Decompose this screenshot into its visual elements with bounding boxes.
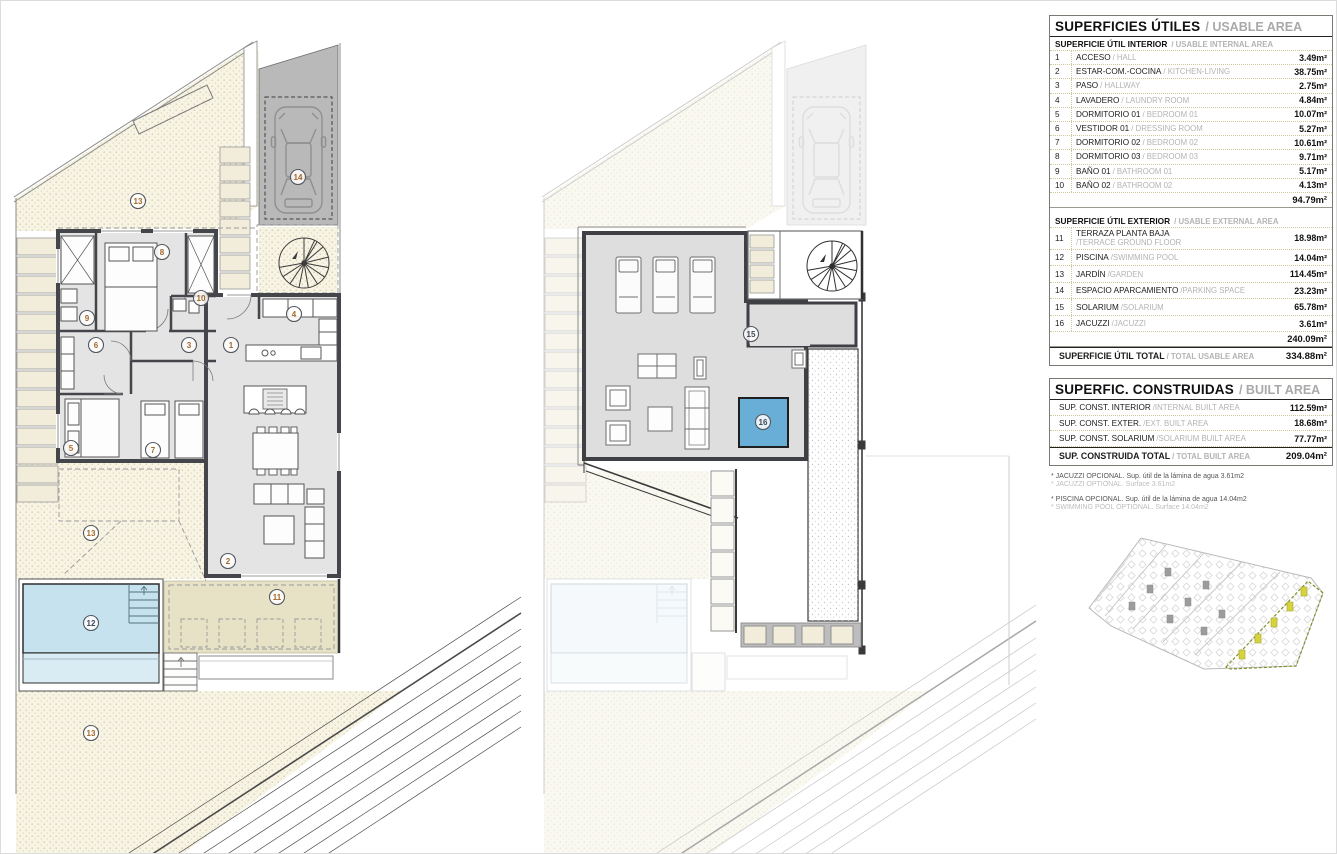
table-row: 9BAÑO 01/ BATHROOM 015.17m² xyxy=(1050,165,1332,179)
built-total-row: SUP. CONSTRUIDA TOTAL/ TOTAL BUILT AREA … xyxy=(1050,447,1332,465)
parking-area xyxy=(259,45,338,225)
table-row: 4LAVADERO/ LAUNDRY ROOM4.84m² xyxy=(1050,94,1332,108)
site-location-map xyxy=(1089,538,1323,669)
interior-subtotal: 94.79m² xyxy=(1050,193,1332,208)
bed-room8 xyxy=(105,243,157,331)
table-row: 15SOLARIUM/SOLARIUM65.78m² xyxy=(1050,299,1332,316)
dining-table xyxy=(253,427,298,475)
table-row: SUP. CONST. SOLARIUM/SOLARIUM BUILT AREA… xyxy=(1050,431,1332,447)
built-area-table: SUPERFIC. CONSTRUIDAS/ BUILT AREA SUP. C… xyxy=(1049,378,1333,466)
svg-text:4: 4 xyxy=(292,310,297,319)
exterior-section-header: SUPERFICIE ÚTIL EXTERIOR/ USABLE EXTERNA… xyxy=(1050,214,1332,228)
walkway xyxy=(199,656,333,679)
roof-steps-column xyxy=(711,469,736,633)
svg-text:6: 6 xyxy=(94,341,99,350)
svg-text:13: 13 xyxy=(134,197,143,206)
svg-text:5: 5 xyxy=(69,444,74,453)
table-row: 8DORMITORIO 03/ BEDROOM 039.71m² xyxy=(1050,150,1332,164)
ground-floor-plan: 13 14 8 10 9 6 3 1 4 5 7 2 13 12 11 13 xyxy=(14,41,521,854)
svg-text:10: 10 xyxy=(197,294,206,303)
kitchen-island xyxy=(244,386,306,414)
table-row: 6VESTIDOR 01/ DRESSING ROOM5.27m² xyxy=(1050,122,1332,136)
table-row: SUP. CONST. EXTER./EXT. BUILT AREA18.68m… xyxy=(1050,416,1332,432)
table-row: 3PASO/ HALLWAY2.75m² xyxy=(1050,79,1332,93)
table-row: 7DORMITORIO 02/ BEDROOM 0210.61m² xyxy=(1050,136,1332,150)
table-row: SUP. CONST. INTERIOR/INTERNAL BUILT AREA… xyxy=(1050,400,1332,416)
footnotes: * JACUZZI OPCIONAL. Sup. útil de la lámi… xyxy=(1049,473,1333,513)
svg-text:9: 9 xyxy=(85,314,90,323)
table-row: 10BAÑO 02/ BATHROOM 024.13m² xyxy=(1050,179,1332,193)
solarium-stair-court xyxy=(748,231,862,299)
terrace xyxy=(164,579,339,653)
usable-total-row: SUPERFICIE ÚTIL TOTAL/ TOTAL USABLE AREA… xyxy=(1050,347,1332,365)
svg-text:16: 16 xyxy=(759,418,768,427)
table-row: 12PISCINA/SWIMMING POOL14.04m² xyxy=(1050,250,1332,267)
built-area-title: SUPERFIC. CONSTRUIDAS/ BUILT AREA xyxy=(1050,379,1332,400)
svg-text:7: 7 xyxy=(151,446,156,455)
table-row: 2ESTAR-COM.-COCINA/ KITCHEN-LIVING38.75m… xyxy=(1050,65,1332,79)
usable-area-table: SUPERFICIES ÚTILES / USABLE AREA SUPERFI… xyxy=(1049,15,1333,366)
exterior-subtotal: 240.09m² xyxy=(1050,332,1332,347)
table-row: 16JACUZZI/JACUZZI3.61m² xyxy=(1050,316,1332,333)
footnote: * PISCINA OPCIONAL. Sup. útil de la lámi… xyxy=(1051,496,1333,505)
roof-terrace-band xyxy=(741,623,861,647)
usable-area-title: SUPERFICIES ÚTILES / USABLE AREA xyxy=(1050,16,1332,37)
svg-text:13: 13 xyxy=(87,729,96,738)
table-row: 14ESPACIO APARCAMIENTO/PARKING SPACE23.2… xyxy=(1050,283,1332,300)
interior-section-header: SUPERFICIE ÚTIL INTERIOR/ USABLE INTERNA… xyxy=(1050,37,1332,51)
wardrobe xyxy=(61,337,74,389)
footnote: * SWIMMING POOL OPTIONAL. Surface 14.04m… xyxy=(1051,504,1333,513)
area-tables-panel: SUPERFICIES ÚTILES / USABLE AREA SUPERFI… xyxy=(1049,15,1333,519)
footnote: * JACUZZI OPCIONAL. Sup. útil de la lámi… xyxy=(1051,473,1333,482)
floorplan-sheet: 13 14 8 10 9 6 3 1 4 5 7 2 13 12 11 13 xyxy=(0,0,1337,854)
svg-text:8: 8 xyxy=(160,248,165,257)
solarium-floor-plan: 15 16 xyxy=(542,41,1036,854)
table-row: 1ACCESO/ HALL3.49m² xyxy=(1050,51,1332,65)
exterior-steps xyxy=(164,653,197,691)
table-row: 5DORMITORIO 01/ BEDROOM 0110.07m² xyxy=(1050,108,1332,122)
svg-text:11: 11 xyxy=(273,593,282,602)
balustrade xyxy=(859,293,865,654)
footnote: * JACUZZI OPTIONAL. Surface 3.61m2 xyxy=(1051,481,1333,490)
table-row: 13JARDÍN/GARDEN114.45m² xyxy=(1050,266,1332,283)
table-row: 11TERRAZA PLANTA BAJA/TERRACE GROUND FLO… xyxy=(1050,228,1332,250)
svg-text:13: 13 xyxy=(87,529,96,538)
svg-text:2: 2 xyxy=(226,557,231,566)
svg-text:15: 15 xyxy=(747,330,756,339)
svg-text:1: 1 xyxy=(229,341,234,350)
svg-text:3: 3 xyxy=(187,341,192,350)
svg-text:14: 14 xyxy=(294,173,303,182)
svg-text:12: 12 xyxy=(87,619,96,628)
pool xyxy=(19,579,163,691)
